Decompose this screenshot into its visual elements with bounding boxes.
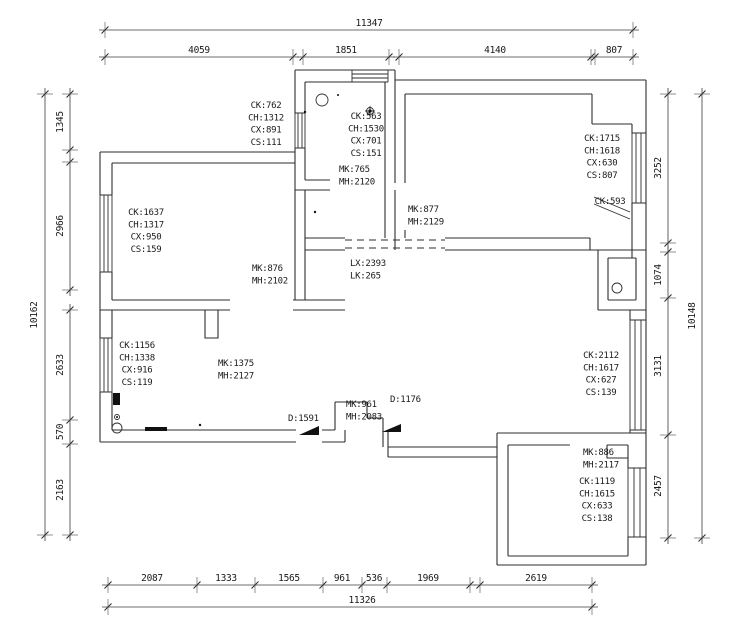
window-livingroom-right: [632, 133, 646, 203]
dim-left-3: 2633: [55, 354, 66, 376]
window-spec-right-middle: CK:2112: [583, 351, 619, 361]
window-bedroom1-left: [100, 195, 112, 272]
dim-left-2: 2966: [55, 215, 66, 237]
dot-symbol: [304, 111, 306, 113]
window-right-middle: [630, 320, 646, 430]
opening-spec-lx: LX:2393: [350, 259, 386, 269]
door-spec-mk961: MH:2083: [346, 412, 382, 422]
dim-top-4: 807: [606, 45, 622, 56]
opening-spec-lx: LK:265: [350, 271, 381, 281]
window-spec-bedroom2: CH:1338: [119, 353, 155, 363]
door-spec-mk961: MK:961: [346, 400, 377, 410]
window-spec-right-middle: CH:1617: [583, 363, 619, 373]
door-spec-kitchen: MH:2120: [339, 177, 375, 187]
dim-left-5: 2163: [55, 479, 66, 501]
dot-symbol: [314, 211, 316, 213]
dim-left-total: 10162: [29, 301, 40, 328]
dim-bottom-6: 1969: [417, 573, 439, 584]
window-spec-livingroom-right: CH:1618: [584, 146, 620, 156]
window-spec-kitchen-left: CX:891: [251, 126, 282, 136]
dim-bottom-7: 2619: [525, 573, 547, 584]
dim-bottom-3: 1565: [278, 573, 300, 584]
window-spec-kitchen-top: CK:563: [351, 112, 382, 122]
window-bedroom2-left: [100, 338, 112, 392]
window-spec-bedroom3: CH:1615: [579, 489, 615, 499]
dim-right-3: 3131: [653, 355, 664, 377]
window-spec-bedroom2: CX:916: [122, 366, 153, 376]
door-spec-kitchen: MK:765: [339, 165, 370, 175]
window-spec-bedroom1: CK:1637: [128, 208, 164, 218]
dim-left-4: 570: [55, 423, 66, 440]
door-leaf-d1591: [299, 426, 319, 435]
window-spec-kitchen-left: CH:1312: [248, 113, 284, 123]
floor-drain-symbol: [112, 423, 122, 433]
floor-plan-drawing: CK:762CH:1312CX:891CS:111CK:563CH:1530CX…: [0, 0, 740, 632]
dim-bottom-total: 11326: [348, 595, 376, 606]
window-kitchen-left: [295, 113, 305, 148]
window-spec-bedroom3: CS:138: [582, 514, 613, 524]
dim-bottom-2: 1333: [215, 573, 237, 584]
spec-labels: CK:762CH:1312CX:891CS:111CK:563CH:1530CX…: [119, 101, 625, 524]
door-spec-bedroom1: MH:2102: [252, 276, 288, 286]
window-spec-livingroom-right: CS:807: [587, 171, 618, 181]
dim-top-total: 11347: [355, 18, 382, 29]
door-spec-livingroom: MK:877: [408, 205, 439, 215]
floor-plan-canvas: CK:762CH:1312CX:891CS:111CK:563CH:1530CX…: [0, 0, 740, 632]
window-bedroom3-right: [628, 468, 646, 537]
window-spec-kitchen-left: CS:111: [251, 138, 282, 148]
dim-left-1: 1345: [55, 111, 66, 133]
balcony-drain-symbol: [612, 283, 622, 293]
vent-symbol: [145, 427, 167, 431]
window-kitchen-top: [352, 70, 388, 82]
door-spec-bedroom1: MK:876: [252, 264, 283, 274]
door-spec-bedroom3: MH:2117: [583, 460, 619, 470]
window-spec-kitchen-top: CX:701: [351, 137, 382, 147]
window-spec-bedroom2: CK:1156: [119, 341, 155, 351]
window-spec-bedroom1: CS:159: [131, 245, 162, 255]
door-spec-hall: MK:1375: [218, 359, 254, 369]
window-spec-kitchen-top: CS:151: [351, 149, 382, 159]
window-spec-bedroom1: CX:950: [131, 233, 162, 243]
window-spec-kitchen-left: CK:762: [251, 101, 282, 111]
window-spec-kitchen-top: CH:1530: [348, 124, 384, 134]
dim-bottom-1: 2087: [141, 573, 163, 584]
dim-top-1: 4059: [188, 45, 210, 56]
dim-top-3: 4140: [484, 45, 506, 56]
dim-right-1: 3252: [653, 157, 664, 179]
door-leaf-d1176: [382, 424, 401, 432]
dim-bottom-4: 961: [334, 573, 351, 584]
dot-symbol: [199, 424, 201, 426]
dim-right-total: 10148: [687, 302, 698, 330]
window-spec-bedroom3: CK:1119: [579, 477, 615, 487]
window-spec-bedroom1: CH:1317: [128, 220, 164, 230]
sink-symbol: [316, 94, 328, 106]
window-spec-livingroom-right: CK:1715: [584, 134, 620, 144]
window-spec-bedroom3: CX:633: [582, 502, 613, 512]
window-spec-right-middle: CS:139: [586, 388, 617, 398]
window-spec-livingroom-right: CX:630: [587, 159, 618, 169]
door-spec-d1176: D:1176: [390, 395, 421, 405]
dim-right-2: 1074: [653, 264, 664, 286]
electric-panel-symbol: [113, 393, 120, 405]
dim-top-2: 1851: [335, 45, 357, 56]
dim-right-4: 2457: [653, 475, 664, 497]
window-spec-bedroom2: CS:119: [122, 378, 153, 388]
door-spec-hall: MH:2127: [218, 371, 254, 381]
dim-bottom-5: 536: [366, 573, 383, 584]
door-spec-bedroom3: MK:886: [583, 448, 614, 458]
window-spec-right-middle: CX:627: [586, 376, 617, 386]
door-spec-d1591: D:1591: [288, 414, 319, 424]
dot-symbol: [337, 94, 339, 96]
door-spec-livingroom: MH:2129: [408, 217, 444, 227]
window-spec-ck593: CK:593: [595, 197, 626, 207]
